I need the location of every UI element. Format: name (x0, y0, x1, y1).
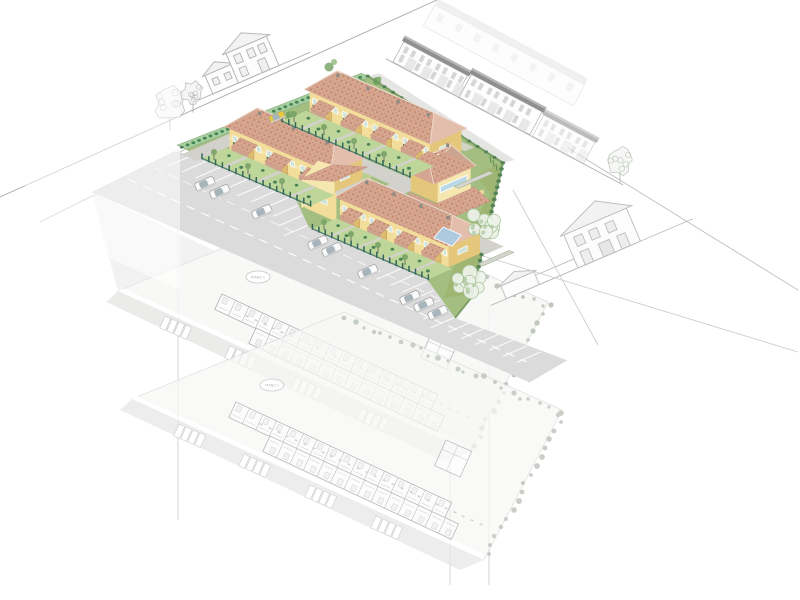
svg-text:PIANO 1: PIANO 1 (251, 276, 265, 280)
svg-text:PIANO 1: PIANO 1 (265, 384, 279, 388)
